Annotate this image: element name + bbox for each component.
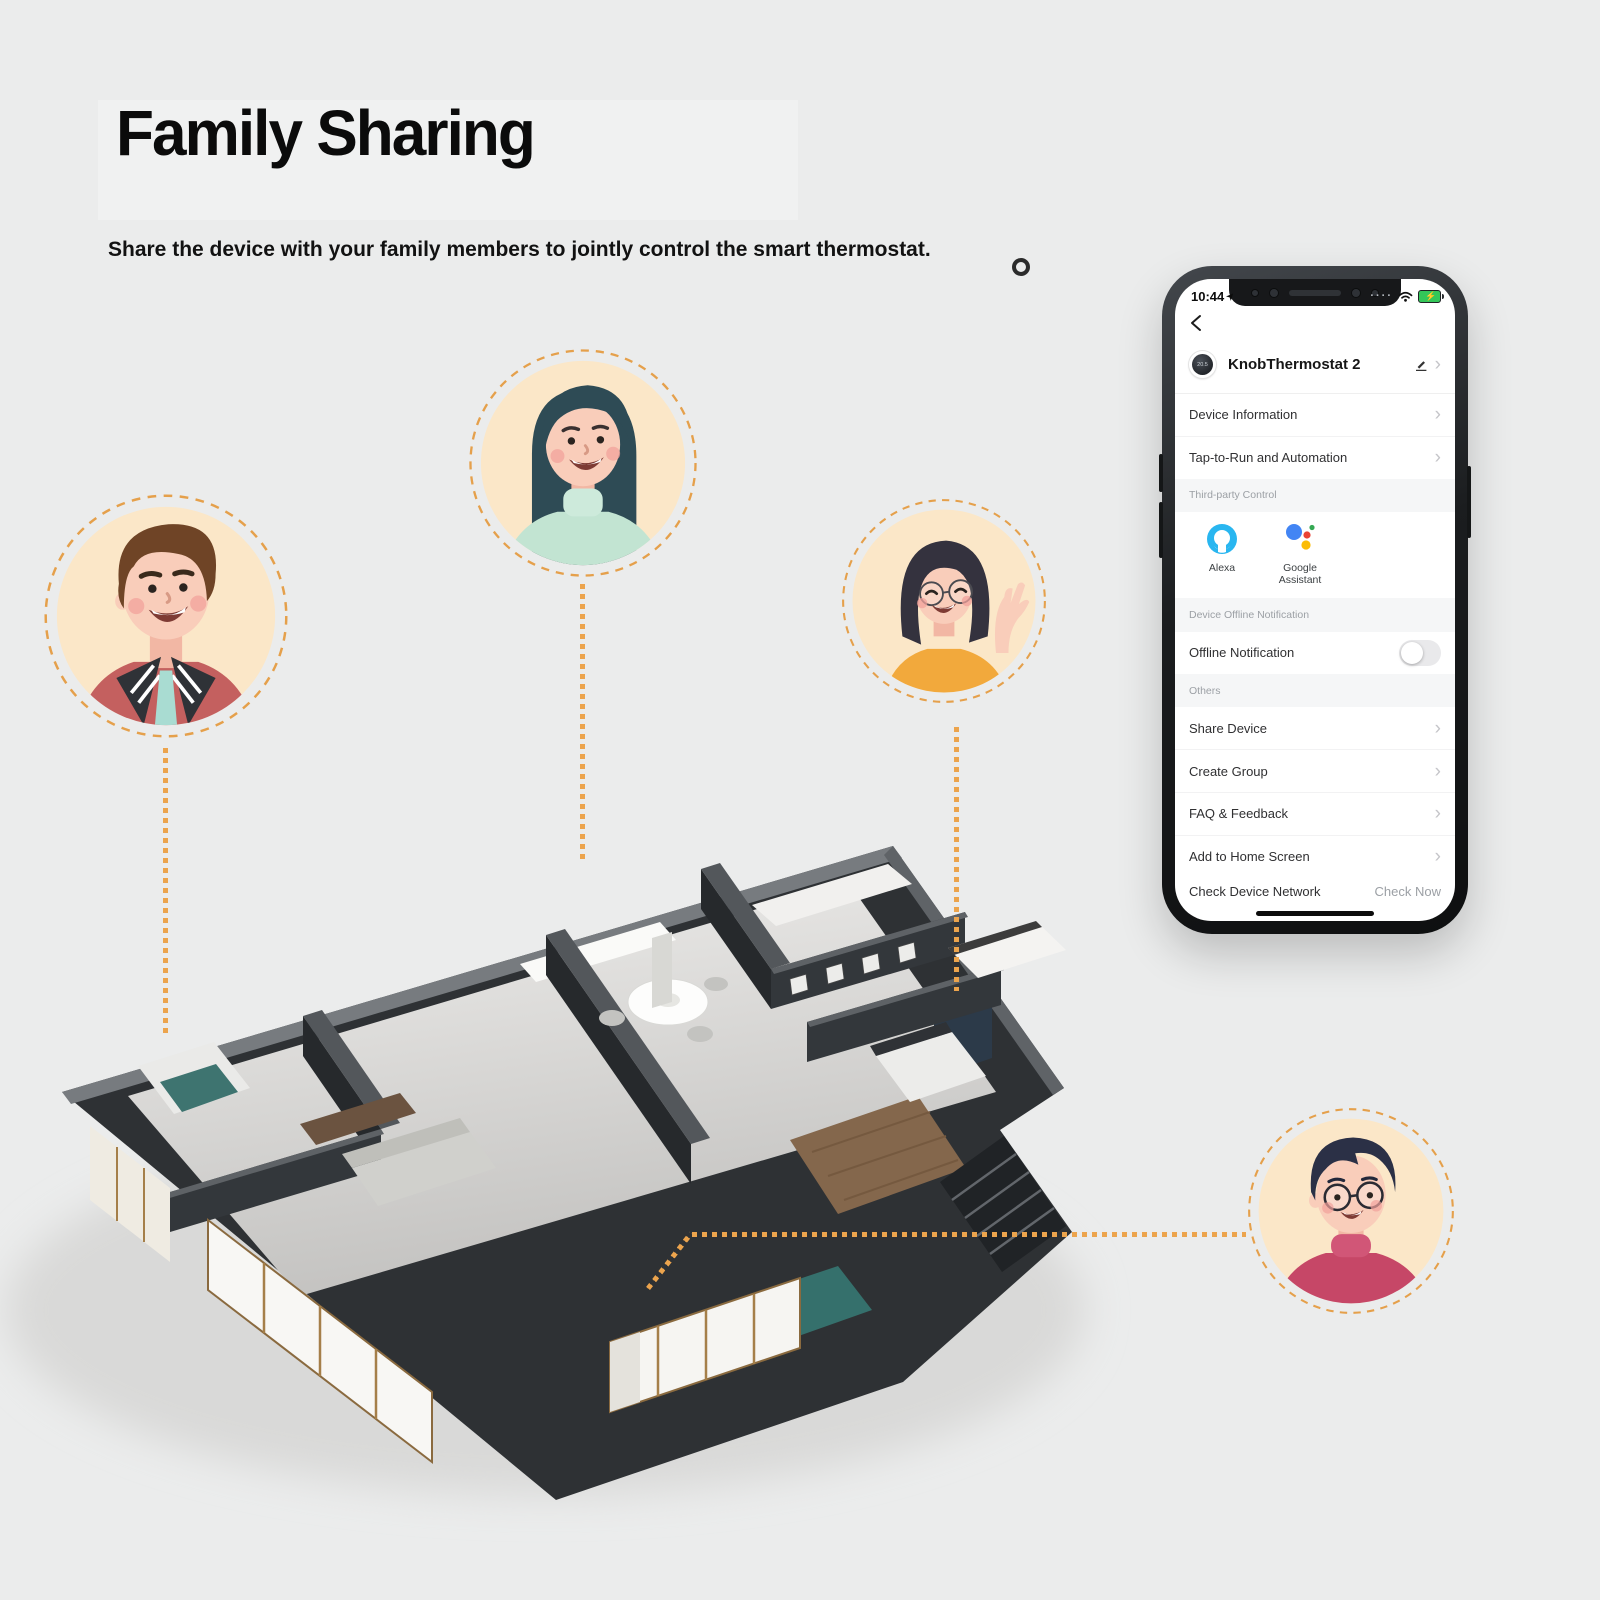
alexa-icon [1205, 522, 1239, 556]
signal-dots-icon: ···· [1370, 293, 1393, 299]
google-assistant-icon [1283, 522, 1317, 556]
avatar-woman-mint-sweater [467, 347, 699, 579]
section-device-offline-notification: Device Offline Notification [1175, 598, 1455, 632]
google-assistant-link[interactable]: Google Assistant [1261, 522, 1339, 586]
home-indicator[interactable] [1256, 911, 1374, 916]
menu-item-faq-feedback[interactable]: FAQ & Feedback › [1175, 792, 1455, 835]
edit-pencil-icon[interactable] [1413, 357, 1429, 373]
volume-up-button [1159, 454, 1163, 492]
chair [687, 1026, 713, 1042]
avatar-woman-orange-top [840, 497, 1048, 705]
status-time: 10:44 [1191, 289, 1224, 304]
dotted-connector-4 [692, 1232, 1246, 1237]
device-header-row[interactable]: 20.5 KnobThermostat 2 › [1175, 337, 1455, 394]
check-now-label: Check Now [1375, 884, 1441, 899]
app-screen: 10:44➤ ···· ⚡ 20.5 [1175, 279, 1455, 921]
thermostat-dial-icon: 20.5 [1189, 351, 1216, 378]
offline-notification-row: Offline Notification [1175, 632, 1455, 674]
chevron-right-icon: › [1435, 804, 1441, 823]
alexa-link[interactable]: Alexa [1183, 522, 1261, 574]
back-button[interactable] [1187, 311, 1209, 335]
chair [704, 977, 728, 991]
door [652, 932, 672, 1008]
wifi-icon [1398, 291, 1413, 302]
battery-charging-icon: ⚡ [1418, 290, 1441, 303]
dotted-connector-1 [163, 748, 168, 1036]
device-name: KnobThermostat 2 [1228, 356, 1401, 373]
dotted-connector-3 [954, 727, 959, 991]
menu-item-share-device[interactable]: Share Device › [1175, 707, 1455, 749]
power-button [1467, 466, 1471, 538]
section-third-party-control: Third-party Control [1175, 479, 1455, 513]
family-sharing-page: Family Sharing Share the device with you… [0, 0, 1600, 1600]
chevron-right-icon: › [1435, 847, 1441, 866]
volume-down-button [1159, 502, 1163, 558]
menu-item-device-information[interactable]: Device Information › [1175, 394, 1455, 436]
chevron-right-icon: › [1435, 448, 1441, 467]
chevron-right-icon: › [1435, 405, 1441, 424]
menu-item-tap-to-run[interactable]: Tap-to-Run and Automation › [1175, 436, 1455, 479]
dotted-connector-2 [580, 584, 585, 862]
chair [599, 1010, 625, 1026]
section-others: Others [1175, 674, 1455, 708]
menu-item-create-group[interactable]: Create Group › [1175, 749, 1455, 792]
chevron-right-icon: › [1435, 355, 1441, 374]
offline-notification-toggle[interactable] [1399, 640, 1441, 666]
chevron-right-icon: › [1435, 719, 1441, 738]
chevron-right-icon: › [1435, 762, 1441, 781]
menu-item-add-to-home-screen[interactable]: Add to Home Screen › [1175, 835, 1455, 878]
phone-mockup: 10:44➤ ···· ⚡ 20.5 [1162, 266, 1468, 934]
status-bar: 10:44➤ ···· ⚡ [1175, 279, 1455, 309]
avatar-man-crimson-sweater [1246, 1106, 1456, 1316]
avatar-man-red-jacket [42, 492, 290, 740]
third-party-icons-row: Alexa Google Assistant [1175, 512, 1455, 598]
location-arrow-icon: ➤ [1224, 290, 1237, 303]
